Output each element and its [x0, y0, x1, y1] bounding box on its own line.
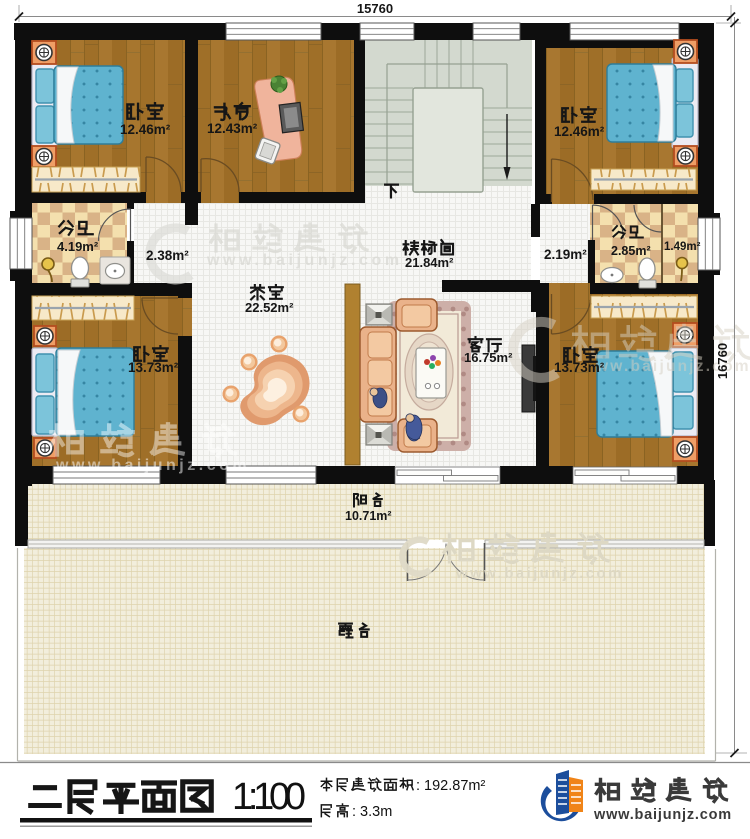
- svg-text:21.84m²: 21.84m²: [405, 255, 454, 270]
- svg-text:www.baijunjz.com: www.baijunjz.com: [55, 457, 250, 474]
- svg-text:16.75m²: 16.75m²: [464, 350, 513, 365]
- svg-text:www.baijunjz.com: www.baijunjz.com: [593, 807, 732, 823]
- svg-text:13.73m²: 13.73m²: [128, 360, 179, 375]
- svg-text:15760: 15760: [357, 1, 393, 16]
- svg-text:www.baijunjz.com: www.baijunjz.com: [206, 252, 403, 269]
- svg-text:: 3.3m: : 3.3m: [352, 804, 392, 820]
- svg-text:www.baijunjz.com: www.baijunjz.com: [455, 565, 624, 582]
- svg-text:2.38m²: 2.38m²: [146, 248, 189, 263]
- svg-text:4.19m²: 4.19m²: [57, 239, 99, 254]
- svg-text:1:100: 1:100: [232, 776, 306, 818]
- svg-text:12.46m²: 12.46m²: [120, 122, 171, 137]
- svg-text:1.49m²: 1.49m²: [664, 241, 701, 253]
- svg-text:2.19m²: 2.19m²: [544, 247, 587, 262]
- svg-text:10.71m²: 10.71m²: [345, 509, 392, 523]
- svg-text:13.73m²: 13.73m²: [554, 360, 605, 375]
- svg-text:: 192.87m²: : 192.87m²: [416, 778, 485, 794]
- svg-text:12.46m²: 12.46m²: [554, 124, 605, 139]
- svg-text:12.43m²: 12.43m²: [207, 121, 258, 136]
- svg-text:22.52m²: 22.52m²: [245, 300, 294, 315]
- svg-text:16760: 16760: [715, 343, 730, 379]
- svg-text:2.85m²: 2.85m²: [611, 244, 651, 258]
